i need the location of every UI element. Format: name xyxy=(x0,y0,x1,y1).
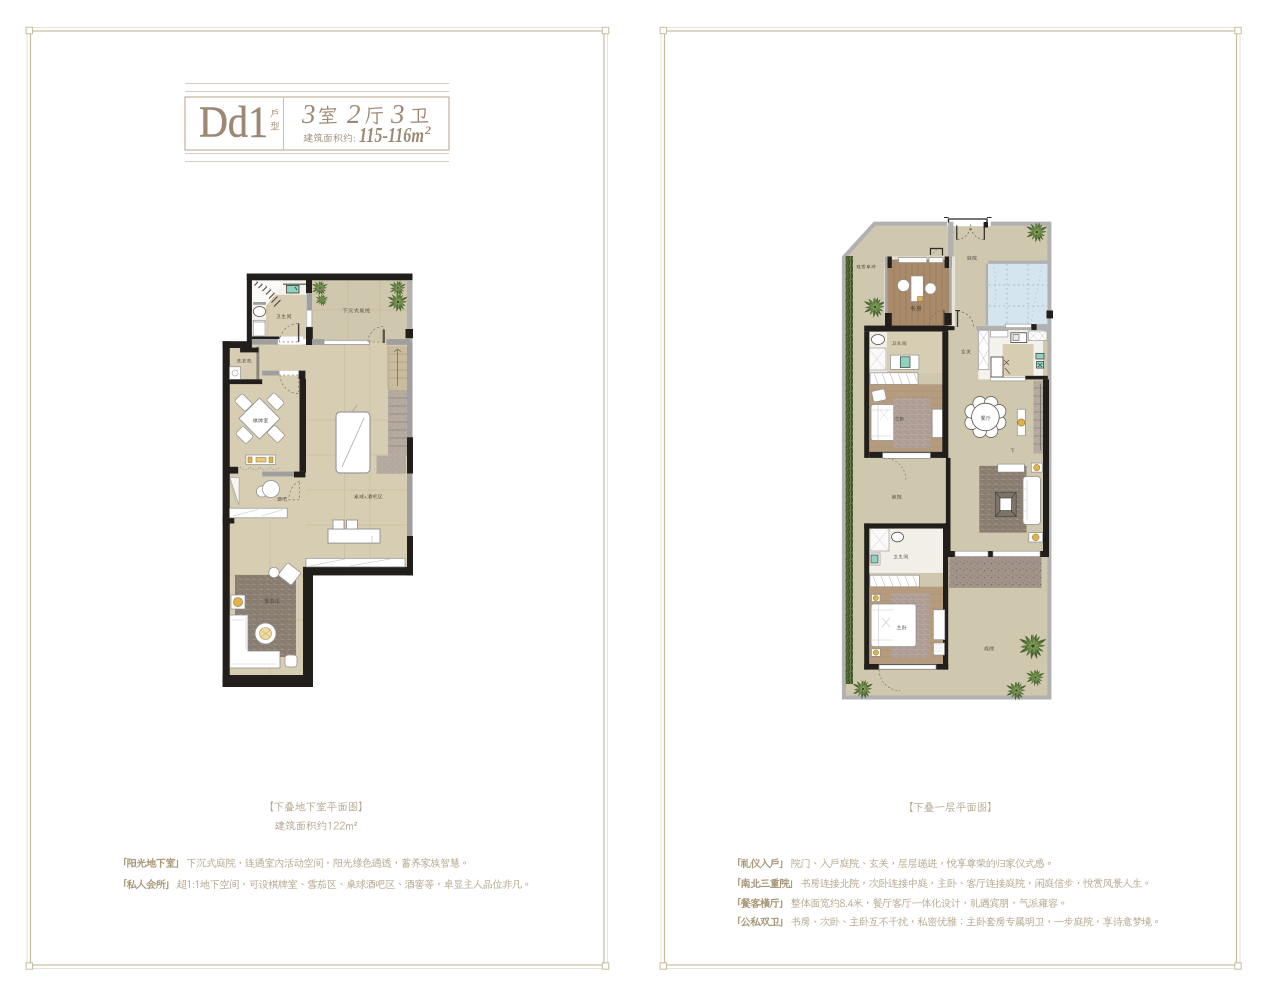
svg-text:Dd1: Dd1 xyxy=(199,98,268,147)
svg-text:115-116m: 115-116m xyxy=(359,123,424,147)
svg-text:2: 2 xyxy=(424,123,431,137)
